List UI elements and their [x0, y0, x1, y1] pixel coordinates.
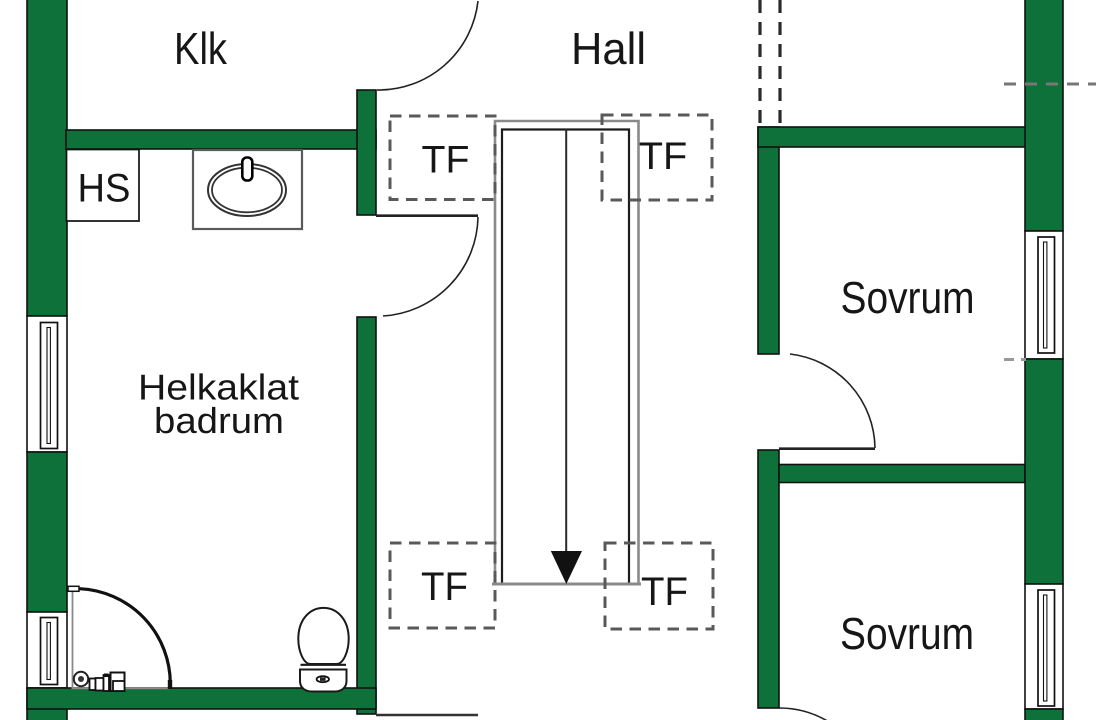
svg-text:Klk: Klk: [174, 23, 227, 74]
svg-text:TF: TF: [639, 135, 688, 178]
svg-text:badrum: badrum: [154, 400, 284, 441]
svg-text:Sovrum: Sovrum: [841, 272, 975, 323]
svg-text:Sovrum: Sovrum: [840, 608, 974, 659]
svg-text:Hall: Hall: [571, 23, 646, 74]
svg-text:TF: TF: [641, 570, 688, 614]
svg-text:TF: TF: [421, 565, 468, 609]
svg-text:TF: TF: [422, 139, 470, 182]
svg-text:HS: HS: [78, 167, 131, 211]
